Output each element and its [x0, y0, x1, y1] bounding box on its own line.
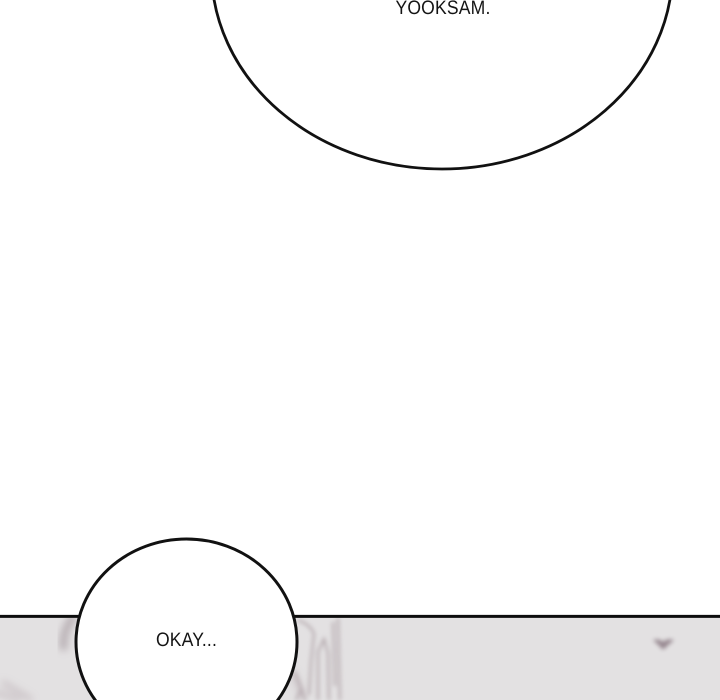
svg-text:YOOKSAM.: YOOKSAM.	[395, 0, 490, 19]
svg-text:OKAY...: OKAY...	[156, 629, 217, 651]
